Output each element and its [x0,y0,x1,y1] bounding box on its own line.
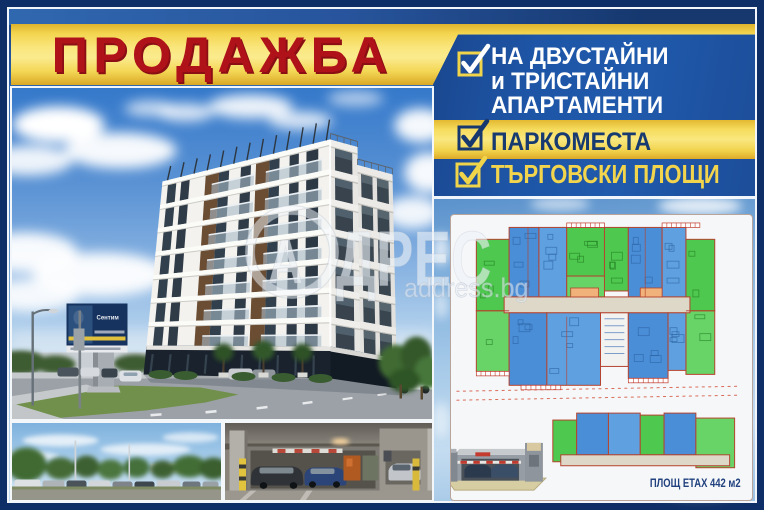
svg-text:address.bg: address.bg [404,274,528,303]
svg-text:А: А [268,227,303,296]
